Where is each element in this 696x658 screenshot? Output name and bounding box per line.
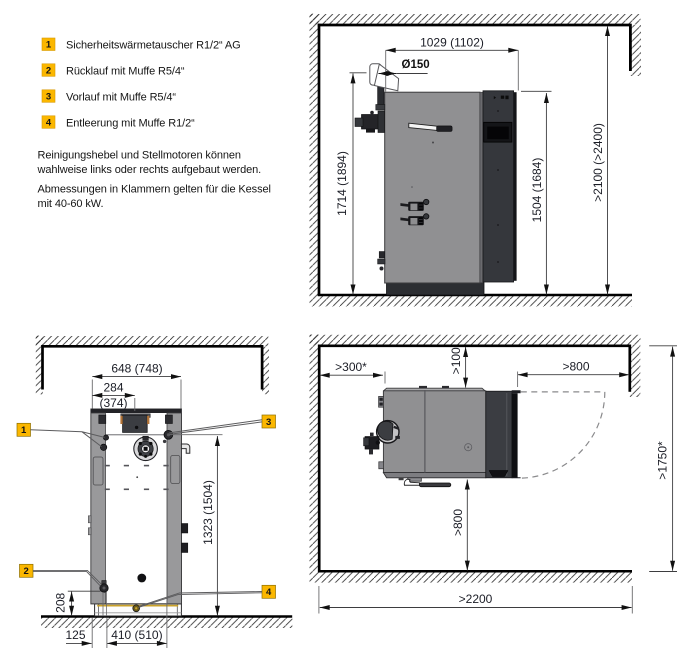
svg-text:1: 1 — [21, 425, 27, 436]
svg-text:mit 40-60 kW.: mit 40-60 kW. — [38, 198, 104, 210]
svg-text:4: 4 — [46, 118, 52, 129]
svg-text:Vorlauf mit Muffe R5/4“: Vorlauf mit Muffe R5/4“ — [66, 91, 176, 103]
svg-text:2: 2 — [24, 566, 29, 577]
svg-text:3: 3 — [46, 92, 51, 103]
svg-text:1: 1 — [46, 40, 52, 51]
svg-text:Rücklauf mit Muffe R5/4“: Rücklauf mit Muffe R5/4“ — [66, 65, 185, 77]
svg-text:648 (748): 648 (748) — [111, 361, 162, 375]
svg-text:125: 125 — [65, 628, 85, 642]
svg-text:>2100 (>2400): >2100 (>2400) — [591, 123, 605, 202]
svg-text:1323 (1504): 1323 (1504) — [201, 480, 215, 545]
svg-text:Reinigungshebel und Stellmotor: Reinigungshebel und Stellmotoren können — [38, 150, 241, 162]
svg-text:>800: >800 — [451, 509, 465, 536]
svg-text:Entleerung mit Muffe R1/2“: Entleerung mit Muffe R1/2“ — [66, 117, 195, 129]
svg-text:>100: >100 — [449, 347, 463, 374]
svg-text:1504 (1684): 1504 (1684) — [530, 158, 544, 223]
svg-text:Sicherheitswärmetauscher R1/2“: Sicherheitswärmetauscher R1/2“ AG — [66, 40, 241, 52]
svg-text:>300*: >300* — [335, 360, 367, 374]
svg-text:Ø150: Ø150 — [402, 59, 430, 71]
svg-text:(374): (374) — [99, 396, 127, 410]
svg-text:>800: >800 — [562, 360, 589, 374]
svg-text:1714 (1894): 1714 (1894) — [335, 151, 349, 216]
svg-text:Abmessungen in Klammern gelten: Abmessungen in Klammern gelten für die K… — [38, 184, 271, 196]
svg-text:>1750*: >1750* — [656, 441, 670, 480]
svg-text:284: 284 — [103, 380, 123, 394]
svg-text:1029 (1102): 1029 (1102) — [420, 35, 484, 49]
svg-text:2: 2 — [46, 66, 51, 77]
svg-text:wahlweise links oder rechts au: wahlweise links oder rechts aufgebaut we… — [37, 164, 262, 176]
svg-text:410 (510): 410 (510) — [111, 628, 162, 642]
svg-text:>2200: >2200 — [459, 592, 493, 606]
svg-text:3: 3 — [266, 417, 271, 428]
svg-text:208: 208 — [54, 592, 68, 612]
svg-text:4: 4 — [266, 587, 272, 598]
